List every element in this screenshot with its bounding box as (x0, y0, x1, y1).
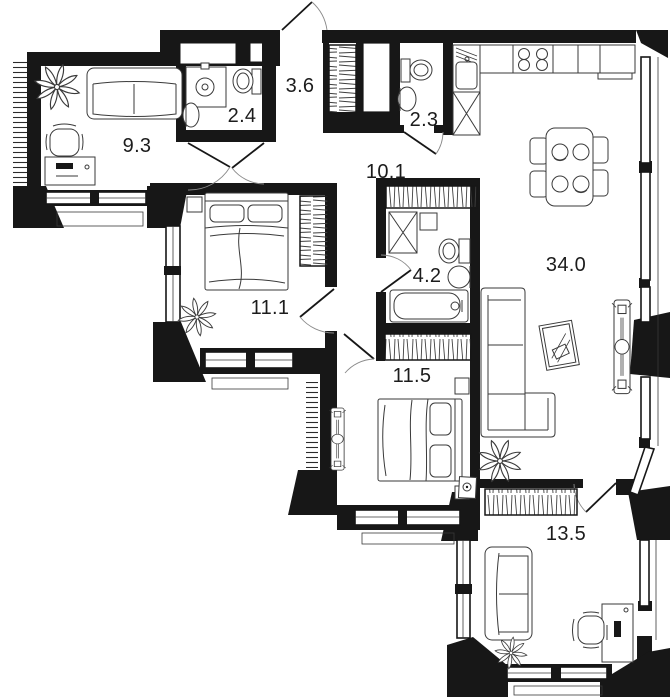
monitor-icon (614, 621, 621, 637)
window-mullion (90, 190, 99, 206)
wall (376, 334, 385, 361)
bedroom3-furniture (485, 547, 633, 671)
dining-table (530, 128, 608, 206)
desk-icon (45, 157, 95, 185)
window-sill (57, 212, 143, 226)
wall (396, 125, 404, 133)
wc-fixtures (398, 59, 432, 111)
hallway-wardrobe (386, 186, 477, 208)
study-door-leaf (188, 143, 230, 167)
bedroom1-door-leaf (300, 289, 334, 317)
wall (471, 334, 480, 361)
double-bed-icon (205, 193, 288, 290)
desk-icon (602, 604, 633, 662)
entry-door-leaf (282, 2, 312, 30)
entry-door-swing (312, 2, 327, 30)
wall (27, 52, 41, 192)
window-mullion (246, 350, 255, 370)
window-mullion (398, 507, 407, 527)
window-sill (514, 686, 602, 695)
toilet-icon (401, 59, 432, 82)
washbasin-icon (183, 103, 199, 127)
corner-sofa-icon (481, 288, 555, 437)
bathroom-door-leaf (381, 270, 411, 292)
room-label-bedroom-2: 11.5 (393, 365, 432, 387)
floor-plan-drawing: 9.3 2.4 3.6 2.3 10.1 11.1 4.2 34.0 11.5 … (0, 0, 670, 700)
floor-plan-page: 9.3 2.4 3.6 2.3 10.1 11.1 4.2 34.0 11.5 … (0, 0, 670, 700)
tv-stand-icon (458, 477, 476, 499)
window (355, 510, 460, 525)
study-furniture (29, 59, 182, 185)
window-sill (362, 533, 454, 544)
wall-wedge (288, 470, 337, 515)
mirror-icon (539, 320, 579, 370)
pillow (430, 403, 451, 435)
living-room-furniture (471, 288, 632, 490)
pillow (210, 205, 244, 222)
room-label-bedroom-3: 13.5 (546, 523, 586, 545)
sink-cabinet (186, 67, 226, 107)
room-label-bedroom-1: 11.1 (251, 297, 290, 319)
bedroom3-wardrobe (485, 489, 577, 515)
table-top (546, 128, 593, 206)
kitchen-cabinet-icon (453, 92, 480, 135)
room-label-entry-hall: 3.6 (286, 75, 315, 97)
neighbor-wall-hatch (13, 60, 27, 188)
wall (356, 43, 363, 133)
wall (376, 178, 386, 258)
toilet-icon (439, 239, 470, 263)
bathtub-icon (390, 290, 468, 322)
window (641, 287, 650, 322)
bedroom2-wardrobe (385, 334, 471, 360)
convector-icon (612, 300, 632, 394)
wall (376, 323, 480, 334)
wall (176, 130, 276, 142)
washbasin-icon (448, 266, 470, 288)
washbasin-icon (398, 87, 416, 111)
bedroom2-furniture (329, 378, 476, 499)
room-label-wc: 2.3 (410, 109, 439, 131)
entry-wardrobe (329, 45, 356, 113)
window-sill (212, 378, 288, 389)
counter-end (598, 73, 632, 79)
bedroom1-door-swing (300, 317, 334, 333)
faucet (201, 63, 209, 69)
pillow (248, 205, 282, 222)
window (641, 172, 650, 280)
hall-door-swing (232, 168, 264, 184)
window (641, 57, 650, 163)
nightstand-icon (187, 197, 202, 212)
monitor-icon (56, 163, 73, 169)
window (641, 377, 650, 439)
hall-door-leaf (232, 143, 264, 168)
window-mullion (455, 584, 472, 594)
sofa-icon (485, 547, 532, 640)
room-label-bathroom-small: 2.4 (228, 105, 257, 127)
wall-wedge (636, 30, 668, 58)
wall (470, 30, 636, 43)
window-mullion (551, 664, 561, 682)
wall-wedge (447, 637, 508, 697)
kitchen-sink-icon (453, 45, 480, 92)
room-label-bathroom: 4.2 (413, 265, 442, 287)
wall (27, 52, 172, 66)
double-bed-icon (378, 399, 462, 481)
nightstand-icon (455, 378, 469, 394)
wall (323, 43, 329, 133)
washing-machine-icon (389, 212, 417, 253)
convector-icon (329, 408, 345, 470)
wc-door-swing (436, 132, 443, 154)
pillow (430, 445, 451, 477)
kitchen-area (453, 45, 635, 206)
chair-icon (530, 171, 548, 197)
bedroom3-door-leaf (586, 483, 616, 512)
toilet-icon (233, 69, 261, 94)
wall (262, 43, 276, 142)
wall (390, 43, 400, 133)
wall (443, 43, 453, 135)
bedroom2-door-swing (345, 359, 374, 373)
wall (363, 112, 390, 133)
room-label-study: 9.3 (123, 135, 152, 157)
water-heater-icon (420, 213, 437, 230)
bedroom1-wardrobe (300, 196, 328, 266)
chair-icon (530, 138, 548, 164)
window-mullion (164, 266, 181, 275)
room-label-living-kitchen: 34.0 (546, 254, 586, 276)
sofa-icon (87, 68, 182, 119)
room-label-hallway: 10.1 (366, 161, 406, 183)
window (640, 540, 649, 606)
stove-icon (513, 45, 553, 73)
entry-closet (363, 43, 390, 112)
wc-door-leaf (404, 132, 436, 154)
office-chair-icon (46, 124, 83, 156)
wall (329, 112, 356, 133)
window-diagonal (630, 447, 654, 495)
duct-niche (180, 43, 236, 64)
neighbor-wall-hatch (306, 382, 318, 468)
wall (322, 30, 470, 43)
office-chair-icon (573, 612, 605, 648)
bedroom2-door-leaf (344, 334, 374, 359)
